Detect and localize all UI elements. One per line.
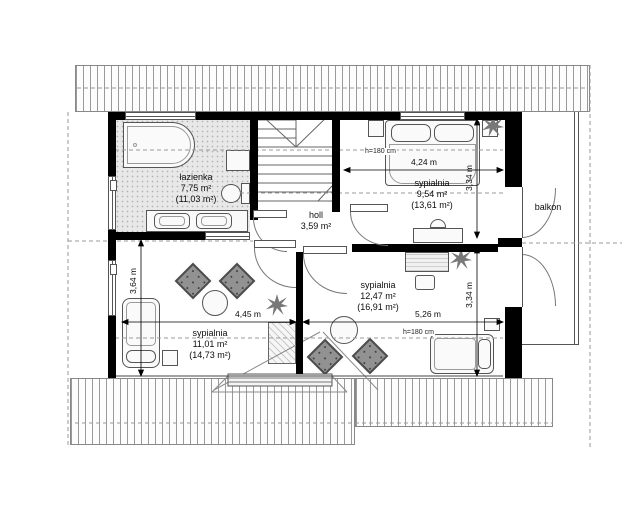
door-swing-balcony-top [522, 188, 556, 238]
nightstand [484, 318, 500, 331]
balcony-edge [522, 344, 579, 345]
wall-bedrooms-divider-v [296, 252, 303, 374]
dim-bedroom-right-width: 5,26 m [403, 309, 453, 319]
wall-right-upper [505, 112, 522, 187]
wall-stair-right [332, 112, 340, 212]
staircase [258, 112, 332, 201]
armchair [352, 338, 389, 375]
room-name: balkon [518, 202, 578, 213]
wardrobe [268, 322, 296, 364]
pillow [126, 350, 156, 363]
roof-hatch-bottom-left [70, 378, 355, 445]
balcony-railing [574, 112, 575, 345]
room-area: 12,47 m² [328, 291, 428, 302]
wall-stair-left [250, 112, 258, 220]
dim-bedroom-right-height: 3,34 m [464, 273, 474, 317]
room-area: 11,01 m² [160, 339, 260, 350]
wall-bedrooms-divider-h [352, 244, 498, 252]
wall-right-stub [498, 238, 522, 247]
door-leaf-bedroom-right [303, 246, 347, 254]
roof-hatch-bottom-right [355, 378, 553, 427]
room-name: łazienka [146, 172, 246, 183]
pillow [478, 339, 491, 369]
roof-hatch-top [75, 65, 590, 112]
door-swing-bedroom-top [350, 212, 388, 246]
room-name: sypialnia [160, 328, 260, 339]
door-leaf-bedroom-left [254, 240, 296, 248]
pillow [434, 124, 474, 142]
window-left-upper [108, 176, 116, 230]
sink-left-basin [159, 216, 185, 226]
round-table [330, 316, 358, 344]
room-label-bathroom: łazienka 7,75 m² (11,03 m²) [146, 172, 246, 205]
knee-height-label-top: h=180 cm [364, 148, 397, 155]
floor-plan: łazienka 7,75 m² (11,03 m²) holl 3,59 m²… [0, 0, 640, 512]
door-leaf-bathroom [253, 210, 287, 218]
dim-bedroom-top-width: 4,24 m [399, 157, 449, 167]
room-name: sypialnia [328, 280, 428, 291]
room-name: holl [286, 210, 346, 221]
room-floor-area: (11,03 m²) [146, 194, 246, 205]
dim-bedroom-left-height: 3,64 m [128, 259, 138, 303]
door-swing-bedroom-left [254, 248, 296, 288]
door-swing-balcony-bottom [522, 254, 556, 306]
single-bed-mattress [434, 338, 476, 370]
desk [405, 252, 449, 272]
window-top-bathroom [125, 112, 196, 120]
wall-niche [205, 232, 250, 240]
daybed-inner [126, 302, 156, 346]
room-area: 7,75 m² [146, 183, 246, 194]
bathroom-cabinet [226, 150, 250, 171]
desk [413, 228, 463, 243]
dim-bedroom-top-height: 3,34 m [464, 156, 474, 200]
room-floor-area: (13,61 m²) [382, 200, 482, 211]
balcony-door-threshold [522, 247, 523, 307]
room-floor-area: (14,73 m²) [160, 350, 260, 361]
pillow [391, 124, 431, 142]
knee-height-label-bottom: h=180 cm [402, 329, 435, 336]
room-label-balcony: balkon [518, 202, 578, 213]
balcony-railing [578, 112, 579, 345]
window-top-bedroom [400, 112, 465, 120]
bathtub-drain [133, 143, 137, 147]
nightstand [368, 120, 384, 137]
window-left-lower [108, 260, 116, 316]
room-label-hall: holl 3,59 m² [286, 210, 346, 232]
armchair [307, 339, 344, 376]
sink-right-basin [201, 216, 227, 226]
room-label-bedroom-left: sypialnia 11,01 m² (14,73 m²) [160, 328, 260, 361]
wall-left [108, 112, 116, 378]
desk-chair [430, 219, 446, 228]
wall-bathroom-bottom [108, 232, 205, 240]
dim-bedroom-left-width: 4,45 m [223, 309, 273, 319]
wall-right-lower [505, 307, 522, 378]
room-area: 3,59 m² [286, 221, 346, 232]
